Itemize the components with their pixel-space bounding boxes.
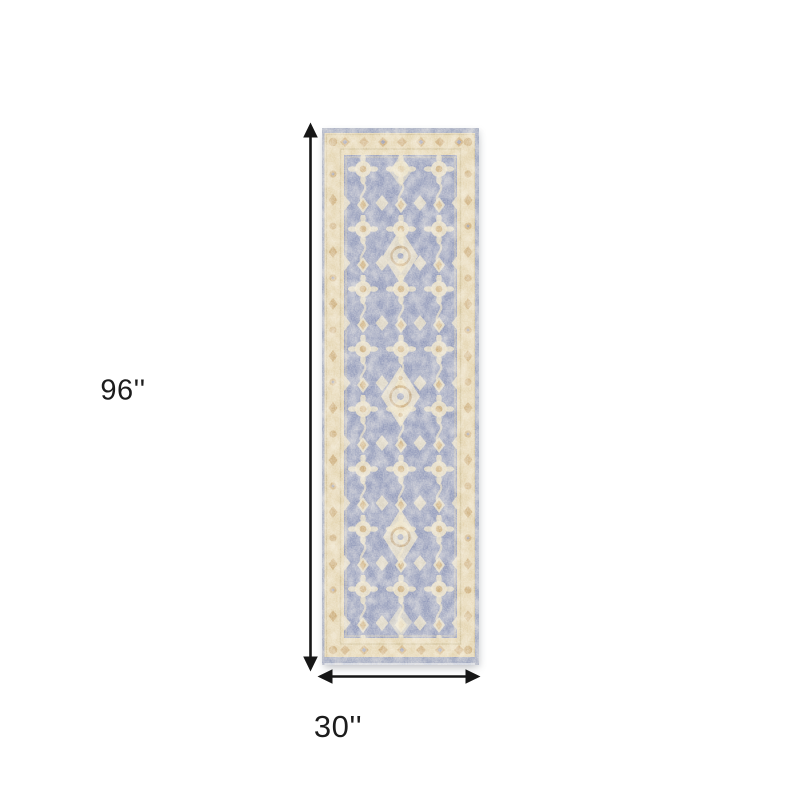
rug-image — [322, 128, 479, 665]
width-dimension-arrow — [318, 669, 481, 684]
rug-illustration — [322, 128, 479, 665]
product-dimension-diagram: 96'' 30'' — [0, 0, 800, 800]
rug-grain-texture — [322, 128, 479, 665]
height-dimension-label: 96'' — [100, 375, 145, 408]
width-dimension-label: 30'' — [314, 709, 362, 745]
arrowhead-left-icon — [318, 669, 333, 684]
height-dimension-arrow — [303, 123, 318, 672]
arrowhead-down-icon — [303, 657, 318, 672]
arrowhead-right-icon — [466, 669, 481, 684]
arrowhead-up-icon — [303, 123, 318, 138]
